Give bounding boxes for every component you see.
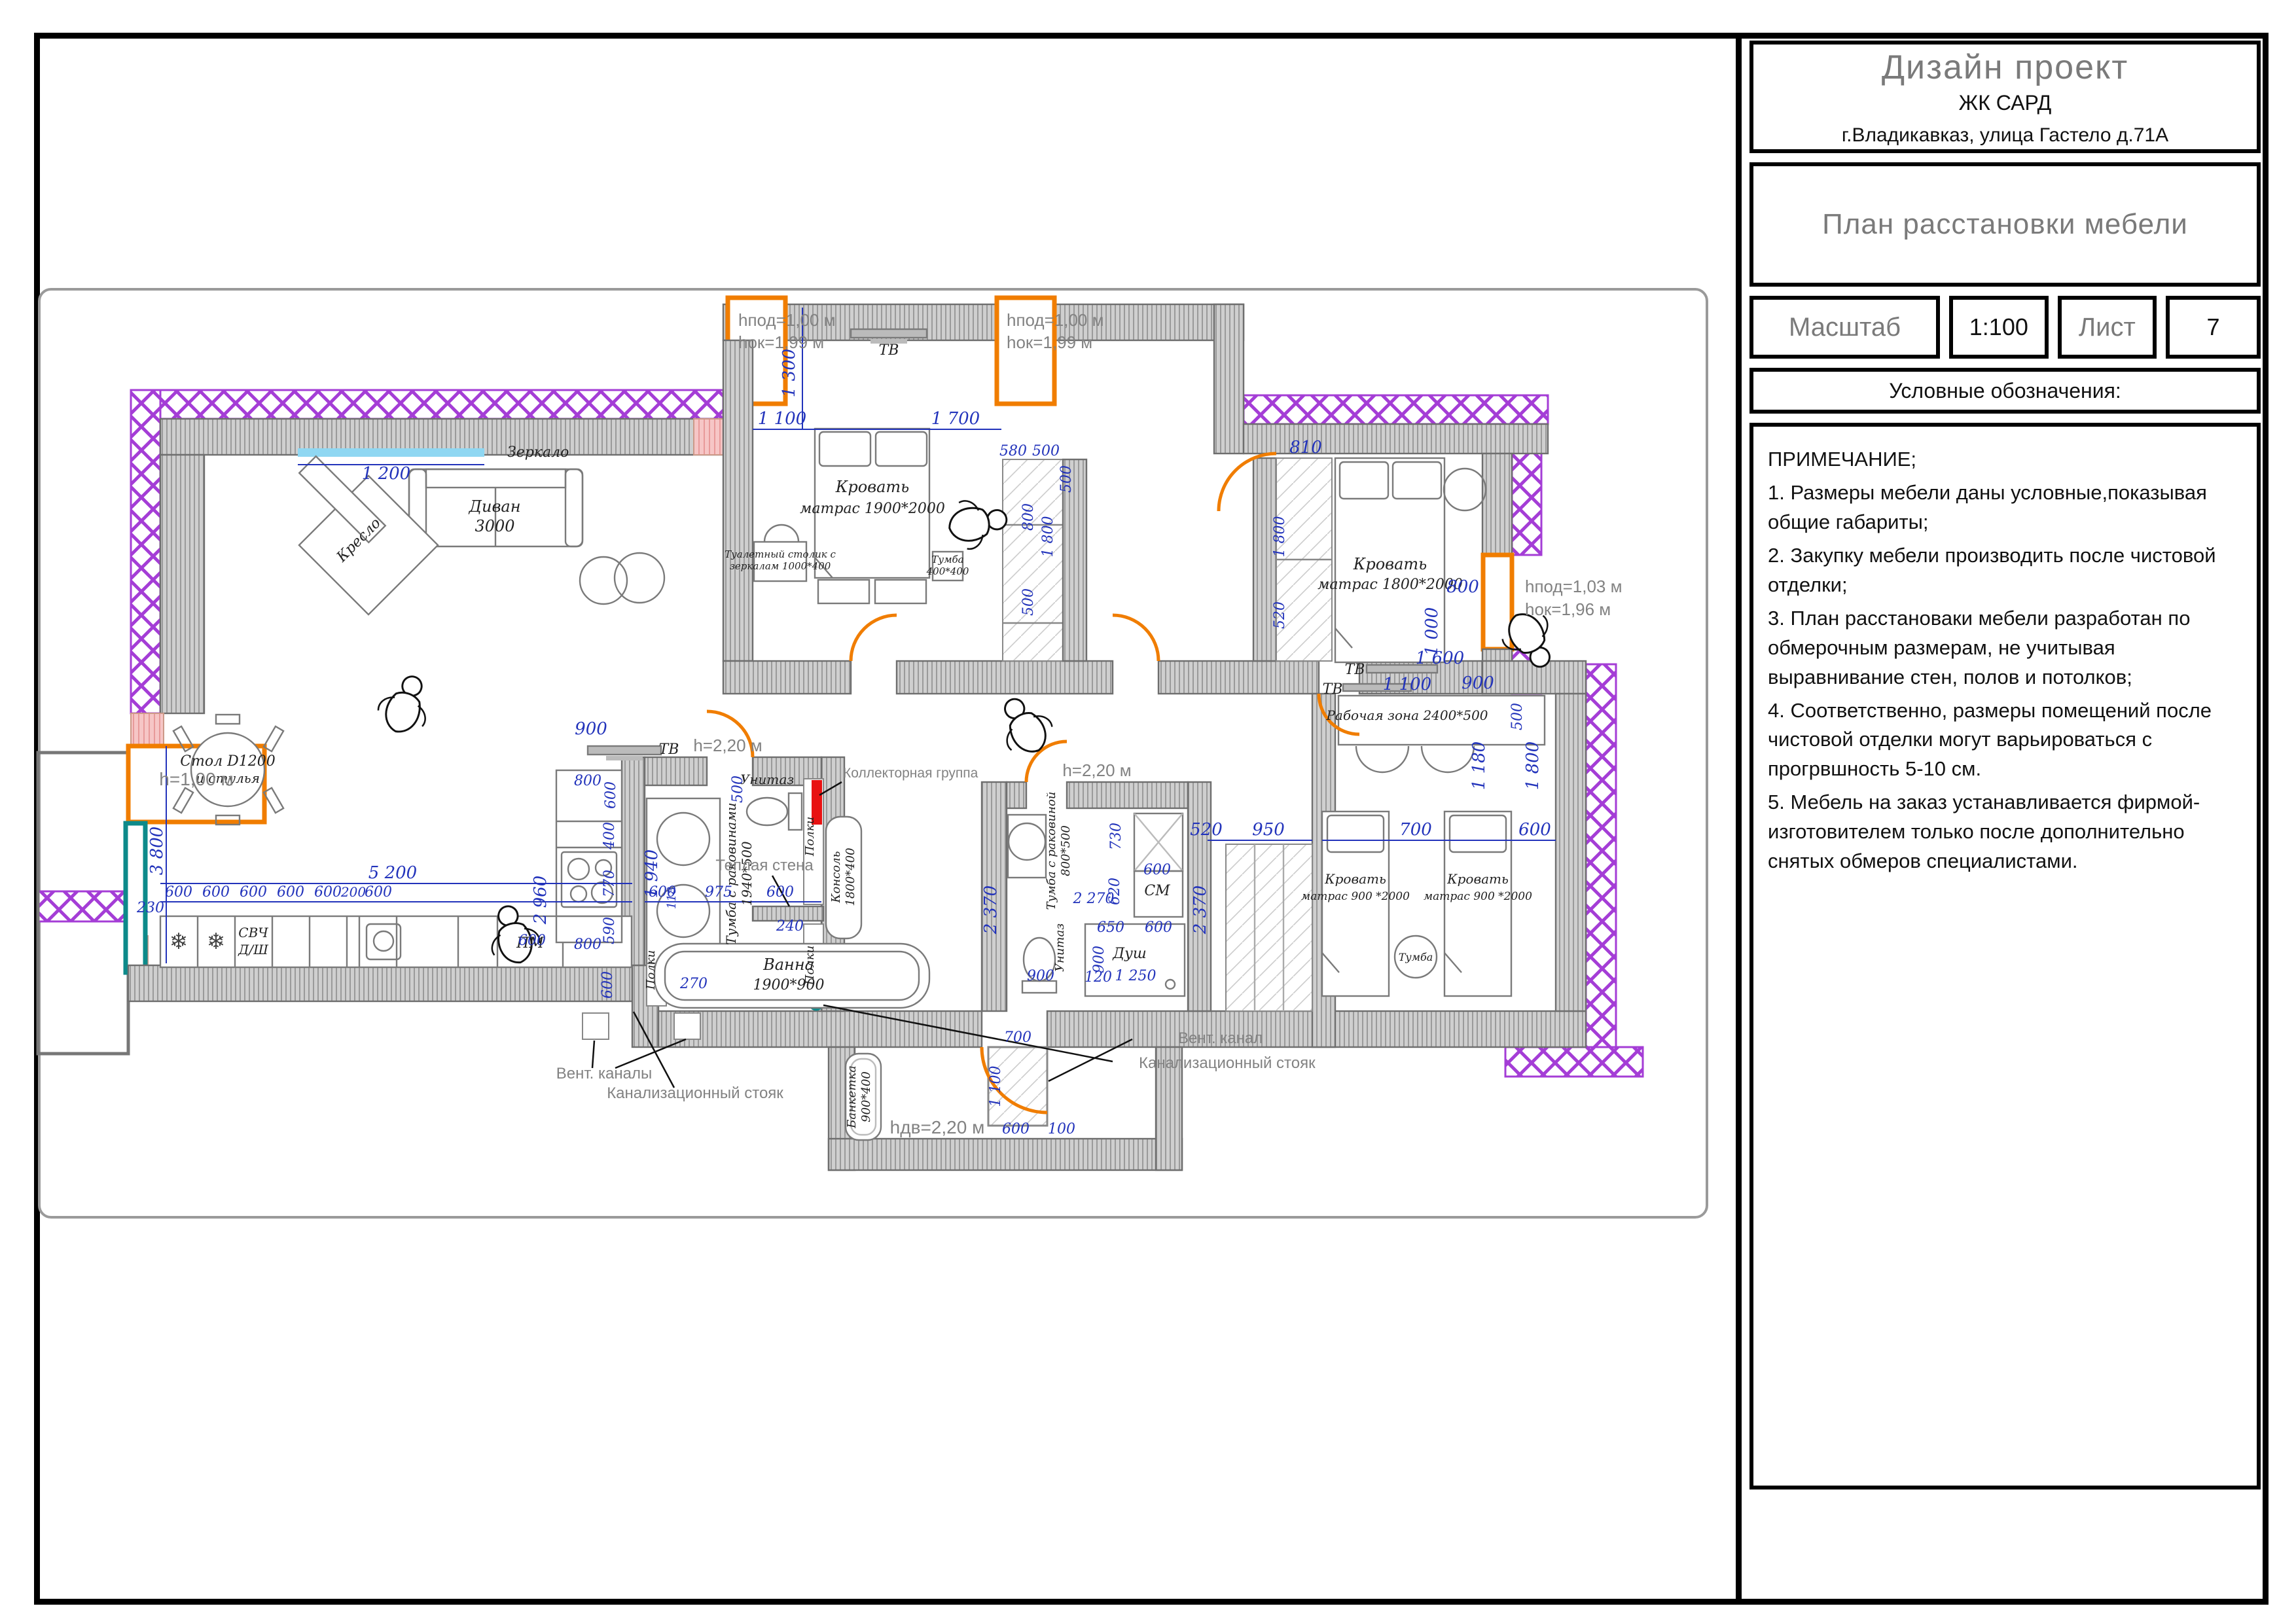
door-arc-master: [851, 615, 897, 661]
plan-text: 700: [1004, 1029, 1031, 1046]
plan-text: 200: [340, 884, 366, 900]
scale-value-cell: 1:100: [1949, 296, 2049, 359]
scale-sheet-row: Масштаб 1:100 Лист 7: [1749, 296, 2261, 359]
wall-closet-b2: [1253, 458, 1276, 661]
bed-bench: [818, 580, 869, 603]
insulation-left: [131, 390, 160, 713]
wardrobe-hall: [1226, 844, 1312, 1011]
plan-text: ТВ: [879, 342, 899, 359]
vanity-chair: [764, 525, 798, 542]
chair: [216, 715, 240, 724]
plan-text: hок=1,96 м: [1525, 599, 1611, 619]
plan-text: 600: [518, 933, 546, 949]
leader: [592, 1041, 594, 1068]
notes-box: ПРИМЕЧАНИЕ; 1. Размеры мебели даны услов…: [1749, 423, 2261, 1489]
drawing-title-box: План расстановки мебели: [1749, 162, 2261, 287]
title-block: Дизайн проект ЖК САРД г.Владикавказ, ули…: [1736, 33, 2269, 1605]
plan-text: 770: [601, 870, 618, 897]
plan-text: 1 180: [1469, 741, 1489, 790]
residential-complex: ЖК САРД: [1959, 91, 2052, 115]
closet-b1: [1003, 459, 1063, 661]
plan-text: Канализационный стояк: [1139, 1054, 1316, 1072]
plan-text: ТВ: [659, 741, 679, 758]
entry-south-wall: [829, 1139, 1182, 1170]
plan-text: 700: [1399, 820, 1432, 840]
vanity-bath2: [1008, 815, 1046, 878]
wall-children-right: [1556, 694, 1586, 1011]
plan-text: 1 800: [1523, 741, 1543, 790]
plan-text: матрас 1900*2000: [800, 501, 945, 517]
plan-text: hпод=1,00 м: [1007, 310, 1103, 330]
plan-text: 900*400: [859, 1071, 873, 1122]
plan-text: 800: [1020, 503, 1037, 531]
plan-text: ТВ: [1345, 662, 1365, 678]
plan-text: Полки: [803, 946, 817, 986]
person-figure: [989, 688, 1060, 762]
plan-text: Кровать: [1446, 871, 1509, 887]
plan-text: hпод=1,00 м: [738, 310, 835, 330]
wall-south-left: [128, 965, 632, 1001]
wall-b2-right-up: [1482, 454, 1512, 555]
plan-text: Вент. каналы: [556, 1065, 653, 1082]
pink-left: [131, 713, 164, 745]
plan-text: 1 100: [1383, 675, 1431, 694]
plan-text: 600: [1518, 820, 1551, 840]
plan-text: 230: [136, 900, 164, 916]
plan-text: Банкетка: [845, 1065, 859, 1129]
plan-text: СВЧ: [238, 925, 268, 940]
plan-text: 2 270: [1073, 891, 1115, 907]
plan-text: Д/Ш: [238, 942, 269, 957]
note-item: 2. Закупку мебели производить после чист…: [1768, 541, 2242, 600]
plan-text: 400*400: [926, 565, 969, 577]
window-b2: [1483, 555, 1512, 649]
plan-text: Унитаз: [740, 772, 794, 787]
plan-text: Тумба с раковиной: [1045, 792, 1058, 910]
project-title: Дизайн проект: [1882, 48, 2128, 87]
insulation-bottom-right: [1505, 1047, 1643, 1077]
plan-text: 1 300: [780, 349, 799, 397]
plan-text: 900: [1462, 673, 1494, 693]
plan-text: 800: [1446, 577, 1479, 597]
plan-text: 2 960: [531, 876, 550, 925]
plan-text: 270: [679, 976, 708, 992]
plan-text: 600: [603, 781, 619, 809]
plan-text: 800: [574, 936, 601, 953]
drawing-title: План расстановки мебели: [1822, 208, 2188, 241]
plan-text: 730: [1108, 823, 1124, 850]
plan-text: Диван: [468, 497, 520, 516]
plan-text: Зеркало: [507, 444, 569, 461]
plan-text: 580: [999, 443, 1027, 459]
plan-text: Теплая стена: [715, 857, 814, 874]
sheet-label: Лист: [2079, 313, 2136, 342]
legend-title: Условные обозначения:: [1889, 379, 2121, 403]
plan-text: Стол D1200: [180, 753, 276, 770]
plan-text: матрас 900 *2000: [1301, 890, 1410, 903]
chair: [264, 726, 283, 751]
wall-bath1-n1: [645, 757, 707, 785]
pink-junction: [694, 419, 723, 455]
plan-text: 900: [1027, 968, 1054, 984]
scale-label: Масштаб: [1789, 313, 1901, 342]
plan-text: 500: [1020, 588, 1037, 616]
coffee-table-2: [615, 553, 664, 603]
plan-text: 650: [1097, 919, 1124, 936]
floor-plan: 1 200ЗеркалоДиван3000КреслоСтол D1200и с…: [0, 262, 1741, 1243]
plan-text: 1 800: [1040, 516, 1056, 558]
plan-text: 1 100: [758, 409, 806, 429]
bed-bench: [875, 580, 926, 603]
plan-text: 590: [601, 917, 618, 944]
plan-text: 500: [1509, 703, 1526, 730]
wall-master-left: [723, 340, 753, 661]
plan-text: Полки: [803, 817, 817, 857]
plan-text: 100: [1048, 1121, 1075, 1137]
plan-text: 600: [365, 884, 392, 901]
title-head: Дизайн проект ЖК САРД г.Владикавказ, ули…: [1749, 41, 2261, 153]
wall-bath2-n2: [1067, 782, 1188, 808]
plan-text: hок=1,99 м: [1007, 332, 1092, 352]
wall-living-left: [160, 455, 204, 713]
plan-text: h=2,20 м: [1062, 760, 1131, 780]
desk-chair: [1356, 746, 1408, 772]
plan-text: Кровать: [1324, 871, 1386, 887]
plan-text: матрас 900 *2000: [1424, 890, 1532, 903]
plan-text: h=1,00 м: [159, 769, 233, 789]
mirror: [298, 448, 484, 457]
plan-text: 975: [705, 884, 732, 901]
plan-text: 520: [1190, 820, 1223, 840]
toilet-tank: [789, 793, 802, 830]
plan-text: СМ: [1144, 883, 1170, 899]
vent-notch-1: [583, 1013, 609, 1039]
plan-text: Тумба: [1399, 951, 1433, 963]
plan-text: 600: [165, 884, 192, 901]
plan-text: Унитаз: [1053, 923, 1067, 972]
plan-text: 500: [1032, 443, 1060, 459]
plan-text: зеркалам 1000*400: [730, 560, 831, 572]
plan-text: 120: [1085, 969, 1112, 986]
plan-text: 600: [202, 884, 230, 901]
insulation-b2-top: [1244, 395, 1548, 424]
plan-text: 240: [776, 918, 804, 935]
plan-text: 900: [575, 719, 607, 739]
wall-hall-2: [897, 661, 1113, 694]
plan-text: 3000: [475, 517, 514, 535]
plan-text: 2 370: [1191, 885, 1210, 935]
wall-hall-3: [1158, 661, 1319, 694]
sheet-label-cell: Лист: [2058, 296, 2157, 359]
wall-bath2-n1: [1007, 782, 1026, 808]
plan-text: 1 200: [362, 464, 410, 484]
plan-text: 400: [601, 822, 618, 850]
notes-heading: ПРИМЕЧАНИЕ;: [1768, 445, 1916, 474]
sheet-number-cell: 7: [2166, 296, 2261, 359]
plan-text: Коллекторная группа: [843, 766, 978, 781]
scale-value: 1:100: [1969, 313, 2028, 341]
person-body: [380, 688, 424, 737]
plan-text: 600: [314, 884, 342, 901]
note-item: 4. Соответственно, размеры помещений пос…: [1768, 696, 2242, 785]
plan-text: 600: [1002, 1121, 1030, 1137]
plan-text: Тумба: [931, 554, 963, 565]
plan-text: 3 800: [147, 827, 167, 875]
insulation-top-living: [160, 390, 723, 419]
person-figure: [945, 494, 1011, 552]
plan-text: 500: [730, 776, 746, 803]
plan-text: 600: [766, 884, 794, 901]
plan-text: 600: [600, 971, 616, 999]
wall-master-step: [1214, 304, 1244, 454]
legend-box: Условные обозначения:: [1749, 368, 2261, 414]
plan-text: hдв=2,20 м: [890, 1117, 985, 1137]
plan-text: 600: [1145, 919, 1172, 936]
plan-text: Кровать: [1353, 555, 1427, 573]
rect: [606, 756, 643, 760]
loggia-door-teal: [126, 823, 145, 972]
plan-text: ❄: [170, 929, 188, 955]
desk-chair: [1422, 746, 1474, 772]
child-bed-1: [1322, 811, 1389, 996]
plan-text: 1 700: [931, 409, 980, 429]
plan-text: Полки: [644, 950, 658, 990]
plan-text: Рабочая зона 2400*500: [1325, 707, 1488, 723]
plan-text: Туалетный столик с: [725, 548, 836, 560]
door-arc-dressing: [1113, 615, 1158, 661]
note-item: 5. Мебель на заказ устанавливается фирмо…: [1768, 788, 2242, 876]
plan-text: 810: [1289, 438, 1322, 457]
coffee-table-1: [580, 557, 627, 604]
scale-label-cell: Масштаб: [1749, 296, 1940, 359]
toilet-bowl: [747, 798, 787, 825]
plan-text: 520: [1272, 601, 1288, 629]
plan-text: 5 200: [368, 863, 417, 883]
project-address: г.Владикавказ, улица Гастело д.71А: [1842, 124, 2168, 147]
insulation-right-children: [1586, 664, 1616, 1077]
person-body: [946, 505, 992, 544]
plan-text: Душ: [1112, 946, 1147, 962]
plan-text: Консоль: [829, 851, 843, 904]
sheet-number: 7: [2207, 313, 2220, 341]
insulation-loggia: [38, 891, 128, 921]
plan-text: 1 800: [1272, 516, 1288, 558]
tv-master: [851, 329, 927, 338]
plan-text: ТВ: [1323, 681, 1343, 698]
plan-text: 1 100: [988, 1066, 1004, 1107]
tv-living: [588, 746, 661, 755]
plan-text: Канализационный стояк: [607, 1084, 783, 1102]
plan-text: 1 250: [1115, 968, 1157, 984]
plan-text: 800*500: [1059, 825, 1073, 876]
plan-text: 950: [1252, 820, 1285, 840]
note-item: 1. Размеры мебели даны условные,показыва…: [1768, 478, 2242, 537]
plan-text: матрас 1800*2000: [1318, 577, 1463, 593]
plan-text: 600: [240, 884, 267, 901]
design-sheet: { "title_block": { "project": "Дизайн пр…: [0, 0, 2296, 1623]
plan-text: 800: [574, 773, 601, 789]
plan-text: 600: [1143, 862, 1171, 878]
plan-text: Кровать: [835, 478, 910, 496]
pouf: [1444, 469, 1486, 510]
person-figure: [373, 669, 439, 740]
vent-notch-2: [674, 1013, 700, 1039]
notes-list: 1. Размеры мебели даны условные,показыва…: [1768, 478, 2242, 880]
plan-text: 118: [665, 887, 679, 909]
note-item: 3. План расстановаки мебели разработан п…: [1768, 604, 2242, 692]
plan-text: ❄: [207, 929, 226, 955]
plan-text: Вент. канал: [1178, 1029, 1263, 1047]
child-bed-2: [1444, 811, 1511, 996]
plan-text: h=2,20 м: [693, 736, 762, 755]
plan-text: 2 370: [981, 885, 1001, 935]
plan-text: 1 600: [1416, 649, 1464, 668]
wall-hall-1: [723, 661, 851, 694]
plan-text: 600: [277, 884, 304, 901]
plan-text: 500: [1058, 465, 1075, 493]
wall-south-mid: [658, 1011, 982, 1047]
plan-text: 1800*400: [844, 847, 857, 906]
plan-text: hпод=1,03 м: [1525, 577, 1622, 596]
